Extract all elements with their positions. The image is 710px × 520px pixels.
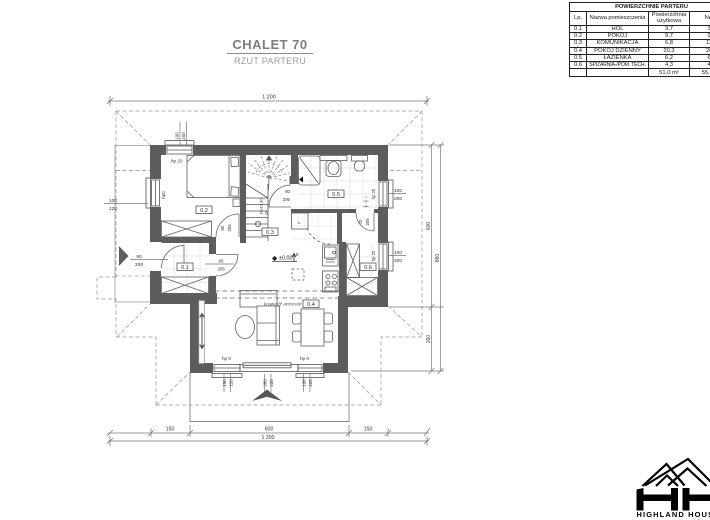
svg-text:200: 200 xyxy=(181,132,186,140)
svg-text:krawędź antresoli: krawędź antresoli xyxy=(264,302,302,308)
svg-text:100: 100 xyxy=(109,198,117,204)
svg-text:HIGHLAND HOUSE: HIGHLAND HOUSE xyxy=(637,510,710,519)
svg-text:260: 260 xyxy=(426,335,432,344)
svg-text:80: 80 xyxy=(220,225,225,230)
svg-text:190: 190 xyxy=(222,379,227,387)
svg-text:0.5: 0.5 xyxy=(332,192,340,198)
svg-text:0.4: 0.4 xyxy=(307,302,315,308)
svg-text:205: 205 xyxy=(283,197,291,202)
svg-text:600: 600 xyxy=(426,222,432,231)
svg-text:100: 100 xyxy=(394,188,402,194)
svg-text:200: 200 xyxy=(394,196,402,202)
svg-text:150: 150 xyxy=(364,427,373,433)
svg-text:80: 80 xyxy=(285,189,290,194)
svg-text:860: 860 xyxy=(435,254,441,263)
svg-text:90: 90 xyxy=(136,254,142,260)
svg-text:70: 70 xyxy=(358,219,363,224)
svg-text:0.6: 0.6 xyxy=(364,265,372,271)
svg-text:200: 200 xyxy=(394,258,402,264)
svg-text:L: L xyxy=(298,220,301,225)
svg-text:220: 220 xyxy=(109,206,117,212)
svg-text:±0,00: ±0,00 xyxy=(279,256,292,262)
svg-text:200: 200 xyxy=(135,262,143,268)
svg-text:150: 150 xyxy=(166,427,175,433)
svg-text:205: 205 xyxy=(217,267,225,272)
svg-text:600: 600 xyxy=(265,427,274,433)
svg-text:205: 205 xyxy=(227,224,232,232)
svg-text:hp0: hp0 xyxy=(161,191,166,199)
svg-text:0.2: 0.2 xyxy=(200,208,208,214)
svg-text:200: 200 xyxy=(263,379,268,387)
svg-text:1 200: 1 200 xyxy=(262,95,276,101)
svg-text:0.1: 0.1 xyxy=(181,265,189,271)
svg-text:0.3: 0.3 xyxy=(266,230,274,236)
svg-text:hp 0: hp 0 xyxy=(222,356,231,361)
svg-text:190: 190 xyxy=(302,379,307,387)
svg-text:220: 220 xyxy=(229,379,234,387)
svg-text:hp 20: hp 20 xyxy=(371,250,376,261)
svg-text:1 200: 1 200 xyxy=(262,435,275,441)
svg-text:220: 220 xyxy=(269,379,274,387)
svg-text:8: 8 xyxy=(296,252,299,257)
svg-text:205: 205 xyxy=(365,218,370,226)
svg-text:hp 20: hp 20 xyxy=(371,188,376,199)
svg-text:28: 28 xyxy=(264,210,269,215)
svg-text:hp 20: hp 20 xyxy=(171,159,183,164)
svg-text:100: 100 xyxy=(394,250,402,256)
svg-text:80: 80 xyxy=(219,259,224,264)
svg-text:220: 220 xyxy=(308,379,313,387)
svg-text:100: 100 xyxy=(175,132,180,140)
svg-text:hp 0: hp 0 xyxy=(300,356,309,361)
